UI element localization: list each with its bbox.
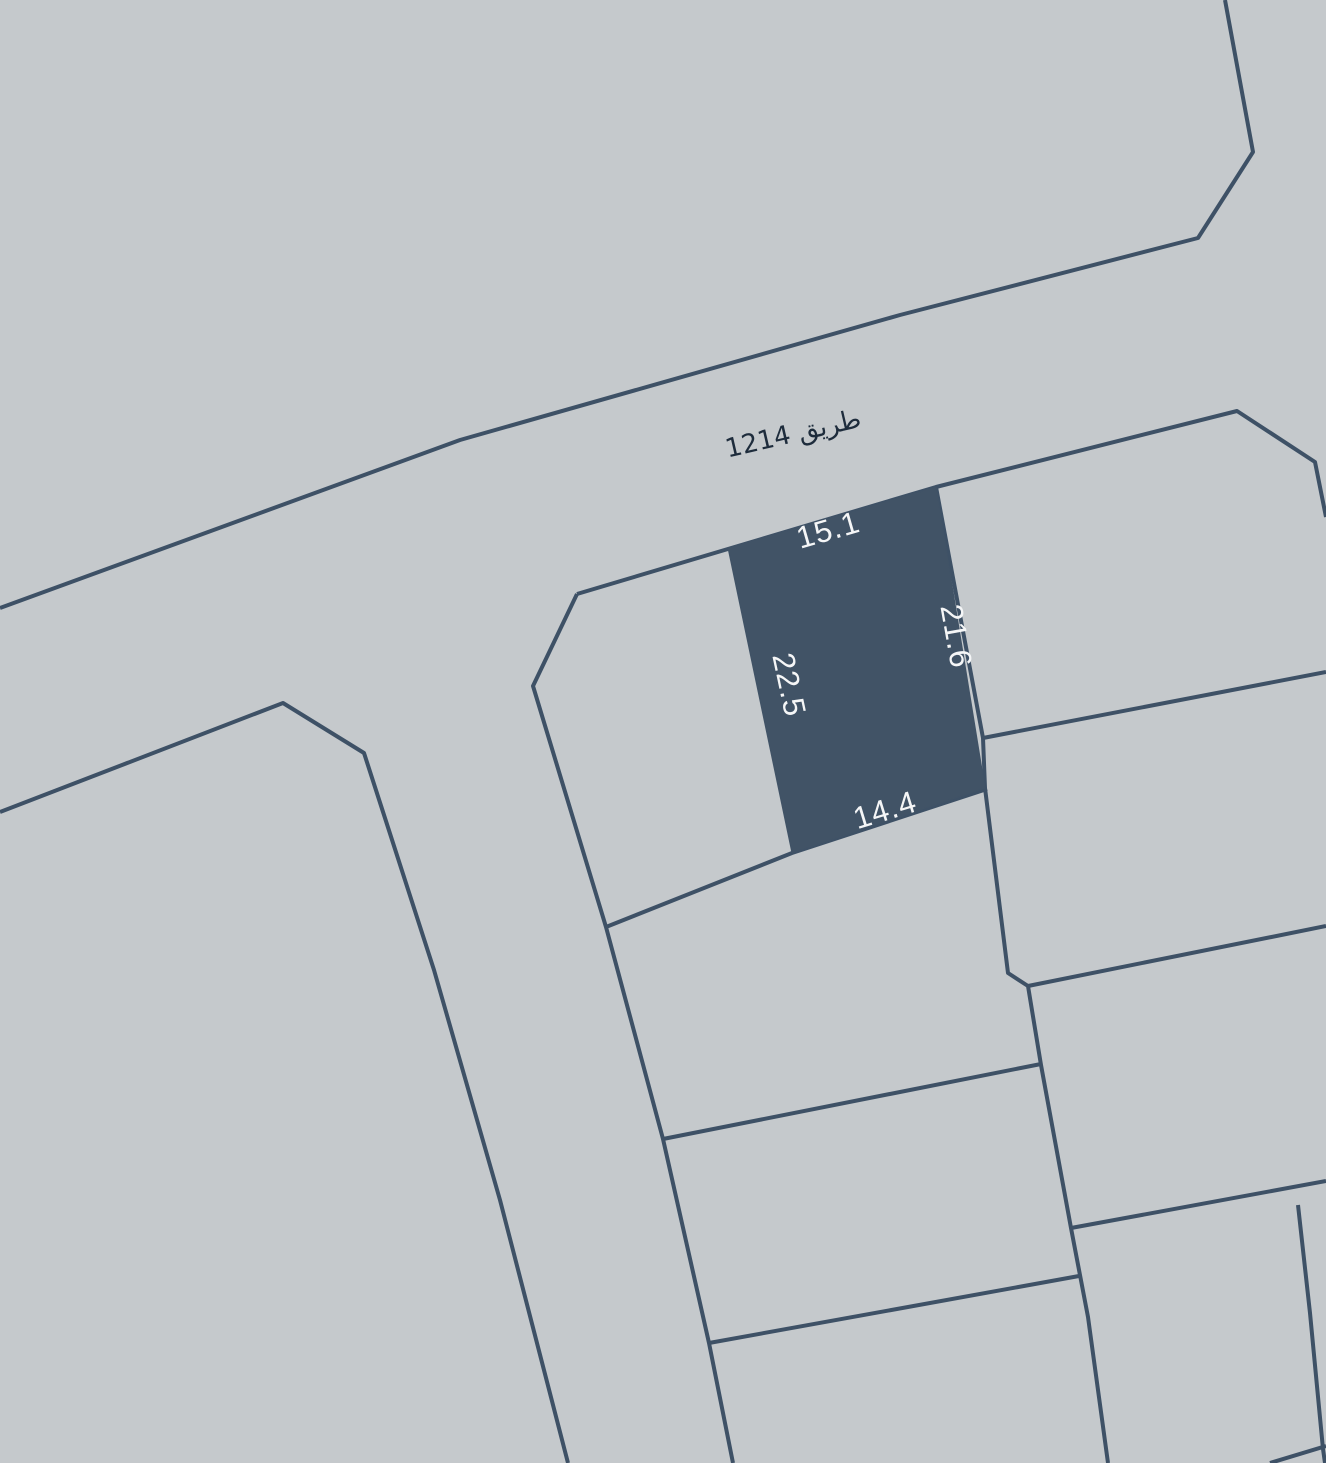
boundary-divider-east-1	[983, 672, 1326, 738]
boundary-divider-east-2	[1028, 926, 1326, 986]
boundary-divider-east-3	[1071, 1181, 1326, 1228]
road-name-label: طريق 1214	[722, 404, 864, 464]
boundary-west-road-boundary	[0, 703, 568, 1463]
boundary-corner-segment	[1270, 1446, 1326, 1463]
boundary-divider-west-3	[709, 1276, 1079, 1343]
boundary-sliver-boundary	[1298, 1205, 1325, 1463]
parcel-map-canvas[interactable]: طريق 1214 15.1 21.6 22.5 14.4	[0, 0, 1326, 1463]
boundary-divider-west-2	[663, 1064, 1041, 1139]
boundary-road-north-boundary	[0, 0, 1253, 608]
boundary-block-west-boundary	[533, 594, 733, 1463]
boundary-lines-layer	[0, 0, 1326, 1463]
cadastral-map[interactable]: طريق 1214 15.1 21.6 22.5 14.4	[0, 0, 1326, 1463]
